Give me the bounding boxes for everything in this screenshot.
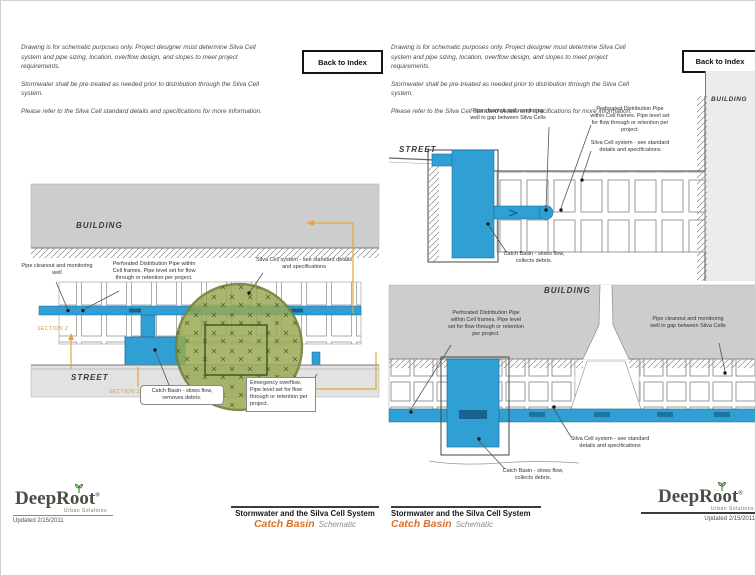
footer-rule-right-logo — [641, 512, 755, 514]
back-to-index-button-left[interactable]: Back to Index — [302, 50, 383, 74]
building-wall-fill — [705, 96, 756, 281]
doc-title-text: Catch Basin — [254, 518, 315, 530]
callout-perforated-pipe-plan: Perforated Distribution Pipe within Cell… — [109, 261, 199, 282]
section-1-label: SECTION 1 — [109, 389, 140, 395]
doc-subtitle-text-r: Schematic — [456, 520, 493, 529]
notes-paragraph-2: Stormwater shall be pre-treated as neede… — [21, 80, 271, 99]
doc-title-right: Catch BasinSchematic — [391, 518, 541, 530]
catch-basin-section2 — [447, 359, 499, 447]
root-zone-opening — [571, 361, 641, 409]
doc-title-text-r: Catch Basin — [391, 518, 452, 530]
building-label-left: BUILDING — [76, 221, 123, 230]
section-view-2-drawing — [389, 279, 756, 507]
schematic-page: Drawing is for schematic purposes only. … — [0, 0, 756, 576]
callout-perforated-section2: Perforated Distribution Pipe within Cell… — [447, 310, 525, 339]
registered-mark-r: ® — [738, 491, 742, 497]
deeproot-logo-right: DeepRoot® — [658, 487, 743, 506]
callout-perforated-section1: Perforated Distribution Pipe within Cell… — [589, 106, 671, 135]
building-label-right-bottom: BUILDING — [544, 286, 591, 295]
footer-rule-left-logo — [13, 515, 113, 516]
sprig-icon — [73, 483, 85, 493]
street-label-left: STREET — [71, 373, 109, 382]
building-wall-strip — [705, 71, 756, 97]
catch-basin-riser — [141, 315, 155, 337]
building-label-right-top: BUILDING — [711, 96, 747, 103]
callout-cleanout-section1: Pipe cleanout and monitoring well in gap… — [467, 108, 549, 122]
series-title-right: Stormwater and the Silva Cell System — [391, 509, 541, 518]
sprig-icon-right — [716, 481, 728, 491]
doc-subtitle-text: Schematic — [319, 520, 356, 529]
section-2-label: SECTION 2 — [37, 326, 68, 332]
logo-tagline-left: Urban Solutions — [15, 508, 107, 514]
callout-cleanout-section2: Pipe cleanout and monitoring well in gap… — [649, 316, 727, 330]
silva-cell-grid-section2-right — [639, 359, 756, 409]
left-notes-block: Drawing is for schematic purposes only. … — [21, 43, 271, 125]
title-rule-right — [391, 506, 541, 508]
callout-catch-basin-section2: Catch Basin - slows flow, collects debri… — [499, 468, 567, 482]
registered-mark: ® — [95, 493, 99, 499]
section-view-1-drawing — [389, 96, 756, 281]
callout-silva-section2: Silva Cell system - see standard details… — [565, 436, 655, 450]
callout-catch-basin-plan: Catch Basin - slows flow, removes debris… — [140, 385, 224, 405]
deeproot-logo-left: DeepRoot® — [15, 489, 100, 508]
notes-paragraph-1: Drawing is for schematic purposes only. … — [21, 43, 271, 72]
title-rule-left — [231, 506, 379, 508]
distribution-pipe-section2 — [389, 409, 756, 422]
building-band — [31, 184, 379, 248]
back-to-index-button-right[interactable]: Back to Index — [682, 50, 756, 73]
callout-silva-section1: Silva Cell system - see standard details… — [589, 140, 671, 154]
notes-paragraph-1r: Drawing is for schematic purposes only. … — [391, 43, 643, 72]
updated-date-right: Updated 2/15/2011 — [661, 516, 755, 522]
notes-paragraph-3: Please refer to the Silva Cell standard … — [21, 107, 271, 117]
callout-catch-basin-section1: Catch Basin - slows flow, collects debri… — [501, 251, 567, 265]
updated-date-left: Updated 2/15/2011 — [13, 518, 64, 524]
series-title-left: Stormwater and the Silva Cell System — [231, 509, 379, 518]
plan-view-drawing — [29, 184, 379, 419]
street-label-right: STREET — [399, 145, 437, 154]
doc-title-left: Catch BasinSchematic — [231, 518, 379, 530]
callout-pipe-cleanout-plan: Pipe cleanout and monitoring well — [21, 263, 93, 277]
callout-silva-cell-plan: Silva Cell system - see standard details… — [251, 257, 357, 271]
callout-emergency-overflow: Emergency overflow. Pipe level set for f… — [246, 377, 316, 412]
